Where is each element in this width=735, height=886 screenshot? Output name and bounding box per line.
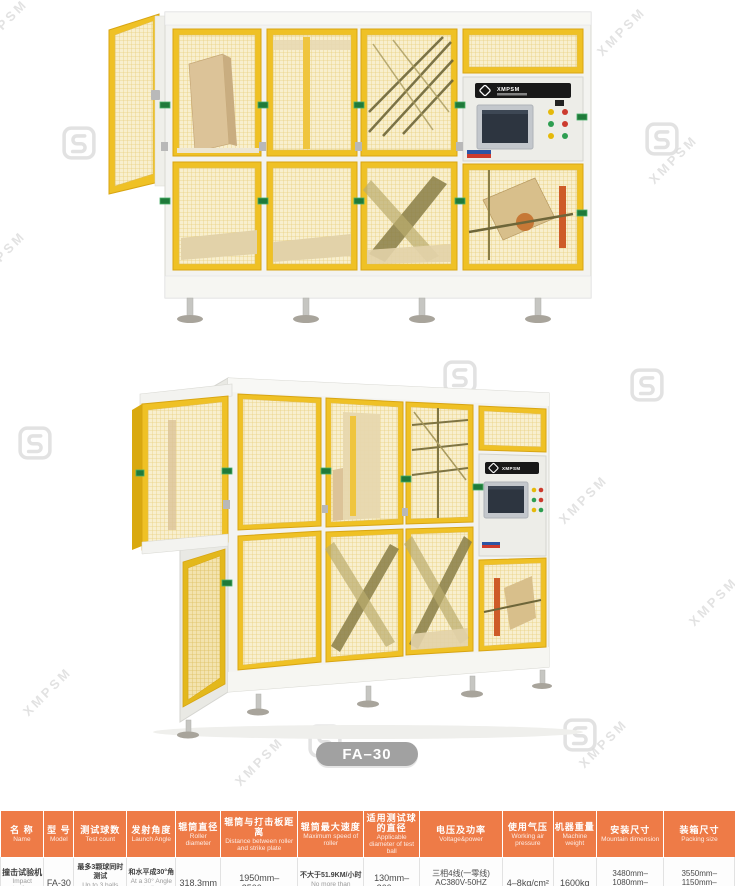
col-header-model: 型 号Model — [44, 811, 74, 858]
touchscreen — [488, 486, 524, 513]
col-header-launch-angle: 发射角度Launch Angle — [127, 811, 176, 858]
model-badge: FA–30 — [316, 742, 418, 766]
cell-max-speed: 不大于51.9KM/小时No more than 51.9km/h — [298, 858, 364, 886]
spec-data-row: 撞击试验机Impact testing machine FA-30 最多3颗球同… — [1, 858, 735, 886]
panel-brand-bar — [475, 83, 571, 98]
col-header-packing-size: 装箱尺寸Packing size — [664, 811, 735, 858]
cell-launch-angle: 和水平成30°角At a 30° Angle to the horizontal — [127, 858, 176, 886]
col-header-ball-diameter: 适用测试球的直径Applicable diameter of test ball — [364, 811, 420, 858]
cell-weight: 1600kg — [553, 858, 596, 886]
spec-table: 名 称Name 型 号Model 测试球数Test count 发射角度Laun… — [0, 811, 735, 886]
spec-header-row: 名 称Name 型 号Model 测试球数Test count 发射角度Laun… — [1, 811, 735, 858]
cell-air-pressure: 4–8kg/cm² — [503, 858, 554, 886]
col-header-name: 名 称Name — [1, 811, 44, 858]
touchscreen — [482, 110, 528, 143]
cell-model: FA-30 — [44, 858, 74, 886]
panel-brand-text: XMPSM — [497, 87, 520, 93]
panel-brand-text: XMPSM — [502, 466, 521, 471]
col-header-roller-diameter: 辊筒直径Roller diameter — [176, 811, 221, 858]
machine-feet — [177, 298, 551, 323]
cell-mountain-dimension: 3480mm–1080mm–H 2322mm — [596, 858, 664, 886]
col-label-zh: 名 称 — [2, 825, 43, 835]
cell-roller-strike-distance: 1950mm–2500mm — [221, 858, 298, 886]
machine-front-photo: XMPSM — [103, 4, 603, 334]
cell-ball-diameter: 130mm–260mm — [364, 858, 420, 886]
cell-voltage-power: 三相4线(一零线)AC380V-50HZ2.5KW — [420, 858, 503, 886]
machine-perspective-photo: XMPSM — [128, 350, 668, 742]
col-header-air-pressure: 使用气压Working air pressure — [503, 811, 554, 858]
cell-test-count: 最多3颗球同时测试Up to 3 balls tested at the sam… — [74, 858, 127, 886]
col-header-roller-strike-distance: 辊筒与打击板距离Distance between roller and stri… — [221, 811, 298, 858]
cell-packing-size: 3550mm–1150mm–H 2480mm — [664, 858, 735, 886]
col-header-weight: 机器重量Machine weight — [553, 811, 596, 858]
col-label-en: Name — [2, 836, 43, 843]
catalog-page: XMPSM XMPSM XMPSM XMPSM XMPSM XMPSM XMPS… — [0, 0, 735, 886]
col-header-test-count: 测试球数Test count — [74, 811, 127, 858]
col-header-mountain-dimension: 安装尺寸Mountain dimension — [596, 811, 664, 858]
col-header-voltage-power: 电压及功率Voltage&power — [420, 811, 503, 858]
col-header-max-speed: 辊筒最大速度Maximum speed of roller — [298, 811, 364, 858]
cell-roller-diameter: 318.3mm — [176, 858, 221, 886]
cell-name: 撞击试验机Impact testing machine — [1, 858, 44, 886]
